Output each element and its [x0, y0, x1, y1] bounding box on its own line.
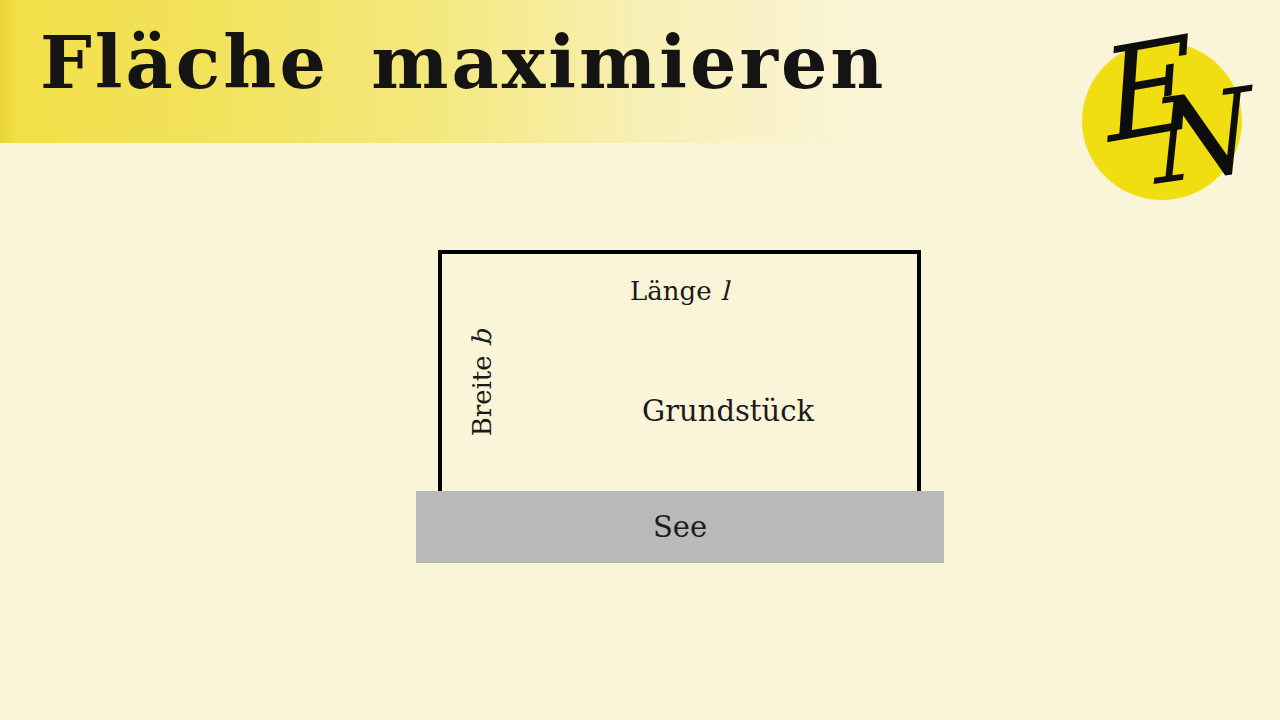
- lake-bar: See: [416, 491, 944, 563]
- area-label: Grundstück: [642, 394, 814, 428]
- length-symbol: l: [721, 276, 729, 306]
- page-title: Fläche maximieren: [40, 26, 886, 99]
- width-label-text: Breite: [467, 355, 497, 436]
- length-label-text: Länge: [630, 276, 712, 306]
- logo-monogram-n: N: [1134, 74, 1251, 203]
- lake-label: See: [653, 510, 707, 544]
- width-label: Breiteb: [467, 330, 497, 437]
- width-symbol: b: [467, 330, 497, 347]
- channel-logo: E N: [1082, 42, 1242, 200]
- length-label: Längel: [438, 276, 921, 306]
- title-banner: Fläche maximieren: [0, 0, 963, 143]
